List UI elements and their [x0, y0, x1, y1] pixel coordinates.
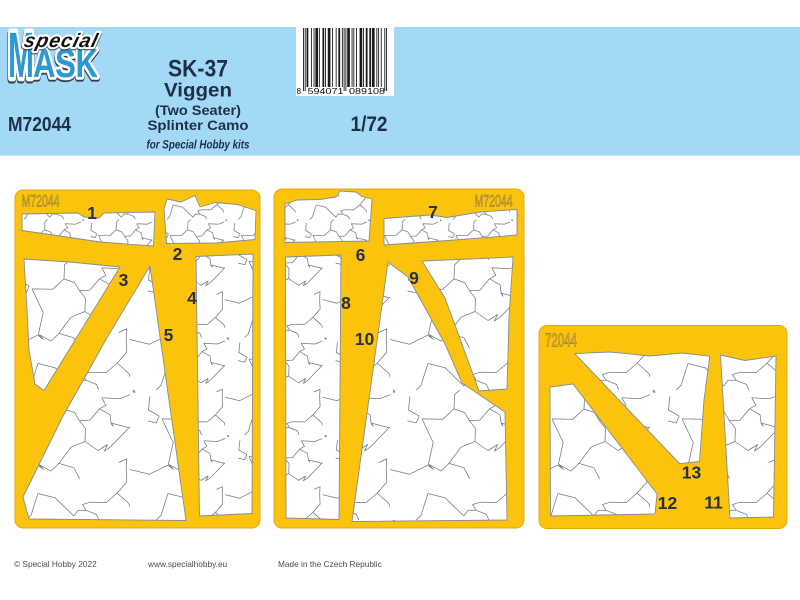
svg-text:M72044: M72044: [475, 191, 513, 210]
svg-text:9: 9: [409, 268, 419, 288]
svg-text:3: 3: [119, 270, 129, 290]
svg-text:Made in the Czech Republic: Made in the Czech Republic: [278, 559, 382, 569]
svg-text:1: 1: [87, 203, 97, 223]
svg-text:4: 4: [187, 288, 197, 308]
svg-text:594071: 594071: [308, 87, 345, 96]
svg-text:6: 6: [356, 245, 366, 265]
svg-text:7: 7: [428, 202, 438, 222]
svg-text:© Special Hobby 2022: © Special Hobby 2022: [14, 559, 97, 569]
svg-text:13: 13: [682, 463, 702, 483]
svg-text:089108: 089108: [349, 87, 386, 96]
svg-text:Viggen: Viggen: [164, 80, 232, 102]
svg-text:(Two Seater): (Two Seater): [155, 103, 241, 118]
svg-text:5: 5: [164, 325, 174, 345]
svg-text:10: 10: [355, 329, 375, 349]
svg-text:11: 11: [704, 493, 723, 513]
svg-text:1/72: 1/72: [351, 113, 388, 136]
svg-text:M72044: M72044: [8, 114, 72, 136]
svg-text:SK-37: SK-37: [168, 56, 228, 83]
svg-text:special: special: [22, 30, 101, 52]
svg-text:2: 2: [173, 244, 183, 264]
svg-text:8: 8: [341, 293, 351, 313]
svg-text:72044: 72044: [545, 331, 577, 351]
svg-text:www.specialhobby.eu: www.specialhobby.eu: [147, 559, 228, 569]
svg-text:Splinter Camo: Splinter Camo: [148, 117, 249, 133]
svg-text:M72044: M72044: [22, 191, 60, 210]
svg-text:8: 8: [297, 87, 302, 96]
svg-text:for Special Hobby kits: for Special Hobby kits: [147, 138, 250, 152]
svg-text:12: 12: [658, 493, 678, 513]
